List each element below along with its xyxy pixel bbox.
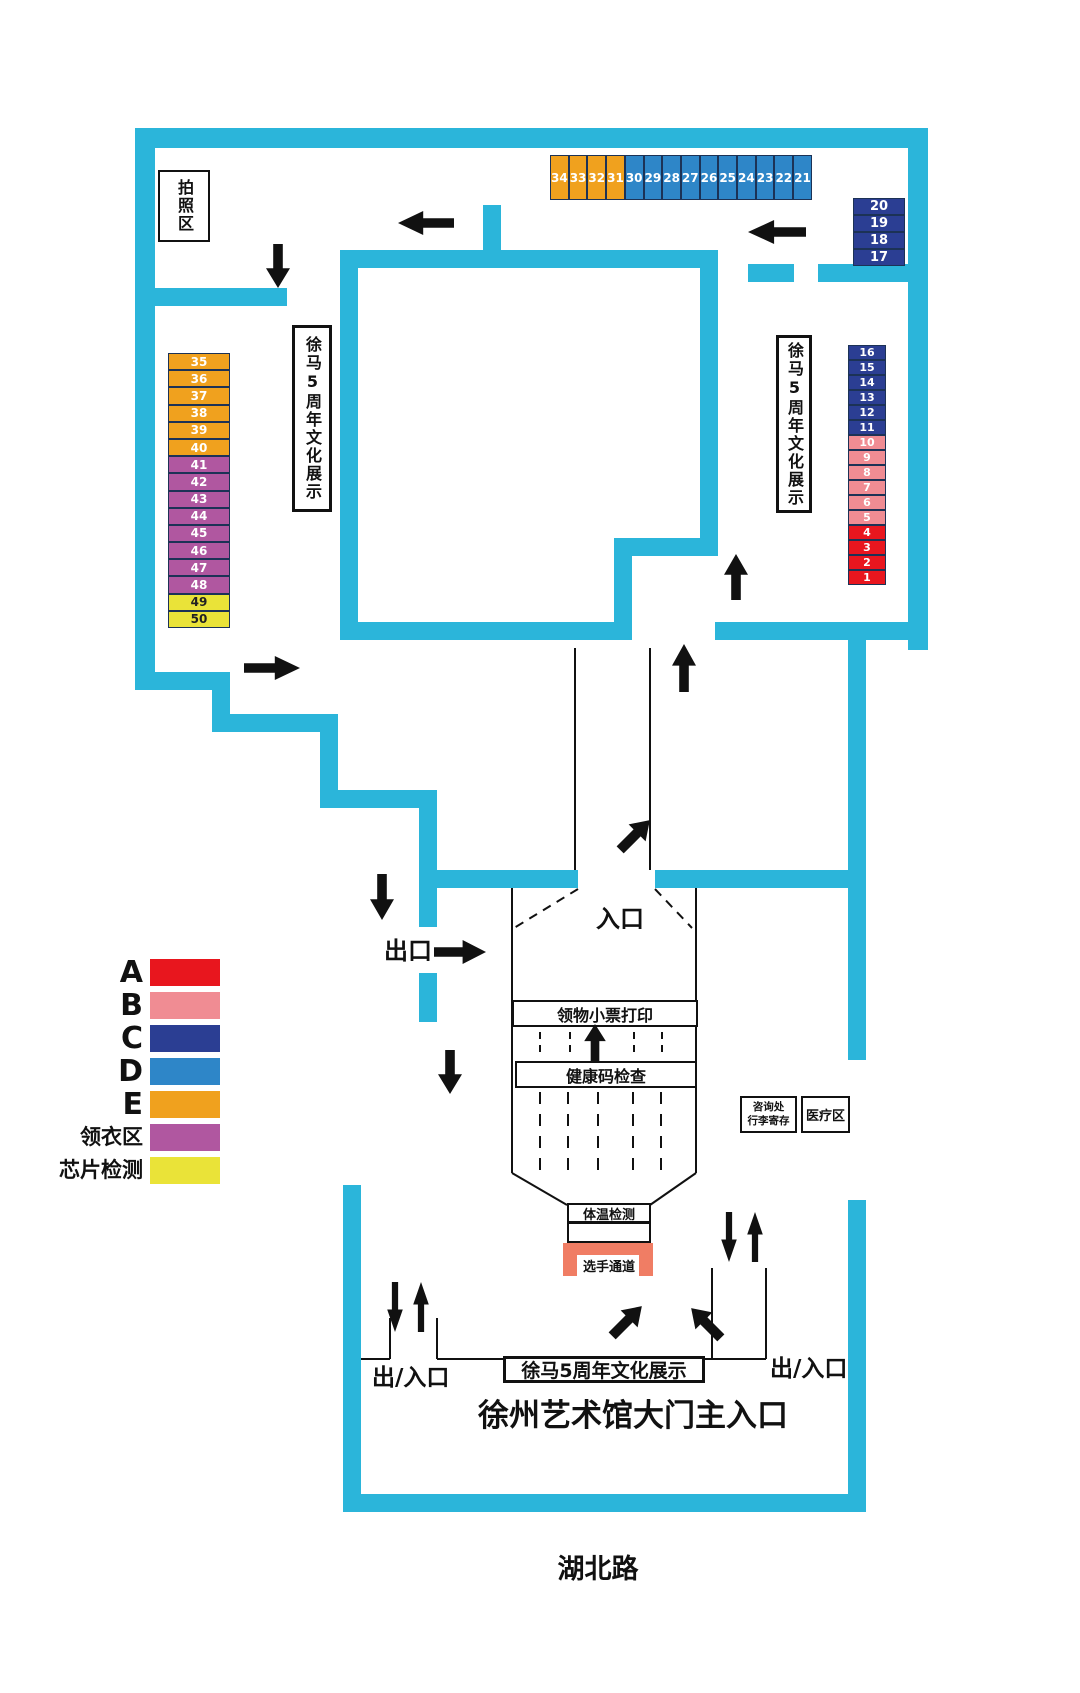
temp-check-empty-box [567, 1222, 651, 1243]
booth-21: 21 [793, 155, 812, 200]
wall-innerroom-right [700, 250, 718, 556]
arrow-up-right-icon [610, 810, 660, 860]
medical-box: 医疗区 [801, 1096, 850, 1133]
info-desk-box: 咨询处 行李寄存 [740, 1096, 797, 1133]
booth-11: 11 [848, 420, 886, 435]
legend-label: B [45, 991, 150, 1021]
booth-18: 18 [853, 232, 905, 249]
main-entrance-title: 徐州艺术馆大门主入口 [443, 1390, 823, 1435]
booth-34: 34 [550, 155, 569, 200]
booth-39: 39 [168, 422, 230, 439]
booth-20: 20 [853, 198, 905, 215]
booth-6: 6 [848, 495, 886, 510]
booth-9: 9 [848, 450, 886, 465]
medical-label: 医疗区 [806, 1105, 845, 1124]
booth-41: 41 [168, 456, 230, 473]
legend-swatch [150, 1091, 220, 1118]
booth-38: 38 [168, 405, 230, 422]
wall-corridor-v3 [419, 790, 437, 927]
legend-swatch [150, 1058, 220, 1085]
legend-label: A [45, 958, 150, 988]
booth-12: 12 [848, 405, 886, 420]
wall-top [135, 128, 928, 148]
legend-row: 领衣区 [45, 1121, 220, 1154]
wall-lower-left [343, 1185, 361, 1494]
booth-col-17-20: 20191817 [853, 198, 905, 262]
booth-45: 45 [168, 525, 230, 542]
booth-33: 33 [569, 155, 588, 200]
legend-row: E [45, 1088, 220, 1121]
booth-17: 17 [853, 249, 905, 266]
wall-right-outer [908, 128, 928, 650]
legend-swatch [150, 1124, 220, 1151]
legend-swatch [150, 992, 220, 1019]
wall-innerroom-step-v [614, 545, 632, 640]
wall-photo-sep [135, 288, 287, 306]
arrow-down-icon [362, 874, 402, 920]
arrow-up-icon [408, 1282, 434, 1332]
arrow-right-icon [434, 932, 486, 972]
booth-7: 7 [848, 480, 886, 495]
arrow-up-icon [577, 1024, 613, 1062]
booth-14: 14 [848, 375, 886, 390]
booth-31: 31 [606, 155, 625, 200]
booth-27: 27 [681, 155, 700, 200]
exhibit-bottom-label: 徐马5周年文化展示 [521, 1356, 686, 1383]
arrow-down-icon [430, 1050, 470, 1094]
wall-entry-left [419, 870, 578, 888]
legend-row: A [45, 956, 220, 989]
gate-right-label: 出/入口 [770, 1349, 862, 1383]
ticket-print-label: 领物小票打印 [557, 1002, 653, 1026]
booth-13: 13 [848, 390, 886, 405]
arrow-up-icon [664, 644, 704, 692]
arrow-left-icon [398, 203, 454, 243]
legend-label: D [45, 1057, 150, 1087]
booth-49: 49 [168, 594, 230, 611]
booth-30: 30 [625, 155, 644, 200]
info-desk-line2: 行李寄存 [748, 1115, 790, 1129]
booth-40: 40 [168, 439, 230, 456]
booth-col-1-16: 16151413121110987654321 [848, 345, 886, 575]
booth-28: 28 [662, 155, 681, 200]
road-label: 湖北路 [498, 1547, 698, 1586]
wall-entry-right [655, 870, 848, 888]
arrow-up-left-icon [681, 1298, 731, 1348]
booth-23: 23 [756, 155, 775, 200]
legend-row: 芯片检测 [45, 1154, 220, 1187]
legend-swatch [150, 1157, 220, 1184]
photo-area-box: 拍照区 [158, 170, 210, 242]
wall-corridor-v4 [419, 973, 437, 1022]
legend-swatch [150, 1025, 220, 1052]
legend-label: E [45, 1090, 150, 1120]
booth-1: 1 [848, 570, 886, 585]
booth-25: 25 [718, 155, 737, 200]
arrow-down-icon [258, 244, 298, 288]
arrow-up-icon [716, 554, 756, 600]
wall-bottom [343, 1494, 866, 1512]
booth-29: 29 [644, 155, 663, 200]
legend-label: C [45, 1024, 150, 1054]
booth-50: 50 [168, 611, 230, 628]
venue-floor-plan: 3433323130292827262524232221 20191817 16… [0, 0, 1080, 1693]
exhibit-right-box: 徐马5周年文化展示 [776, 335, 812, 513]
legend-row: D [45, 1055, 220, 1088]
legend-row: B [45, 989, 220, 1022]
gate-left-label: 出/入口 [372, 1358, 464, 1392]
wall-upper-right-stub [748, 264, 794, 282]
athlete-channel-label: 选手通道 [567, 1256, 651, 1275]
photo-area-label: 拍照区 [172, 179, 196, 233]
booth-2: 2 [848, 555, 886, 570]
exhibit-right-label: 徐马5周年文化展示 [782, 342, 806, 507]
booth-col-35-50: 35363738394041424344454647484950 [168, 353, 230, 628]
booth-10: 10 [848, 435, 886, 450]
booth-42: 42 [168, 473, 230, 490]
booth-22: 22 [774, 155, 793, 200]
booth-row-21-34: 3433323130292827262524232221 [550, 155, 810, 200]
arrow-up-right-icon [602, 1296, 652, 1346]
booth-16: 16 [848, 345, 886, 360]
exhibit-left-label: 徐马5周年文化展示 [300, 336, 324, 501]
wall-innerroom-bottom [340, 622, 632, 640]
legend-label: 领衣区 [45, 1127, 150, 1148]
booth-8: 8 [848, 465, 886, 480]
booth-5: 5 [848, 510, 886, 525]
temp-check-label: 体温检测 [583, 1204, 635, 1223]
wall-innerroom-stub [483, 205, 501, 268]
legend-label: 芯片检测 [45, 1160, 150, 1181]
arrow-up-icon [742, 1212, 768, 1262]
booth-37: 37 [168, 387, 230, 404]
wall-upper-right-seg [818, 264, 928, 282]
wall-lower-right-a [848, 640, 866, 1060]
ticket-print-box: 领物小票打印 [512, 1000, 698, 1027]
booth-4: 4 [848, 525, 886, 540]
temp-check-box: 体温检测 [567, 1203, 651, 1223]
health-check-label: 健康码检查 [566, 1063, 646, 1087]
booth-43: 43 [168, 491, 230, 508]
booth-46: 46 [168, 542, 230, 559]
exhibit-left-box: 徐马5周年文化展示 [292, 325, 332, 512]
info-desk-line1: 咨询处 [748, 1101, 790, 1115]
entrance-label: 入口 [578, 899, 662, 934]
legend-row: C [45, 1022, 220, 1055]
legend-swatch [150, 959, 220, 986]
booth-15: 15 [848, 360, 886, 375]
arrow-left-icon [748, 212, 806, 252]
booth-24: 24 [737, 155, 756, 200]
arrow-down-icon [716, 1212, 742, 1262]
exhibit-bottom-box: 徐马5周年文化展示 [503, 1356, 705, 1383]
booth-26: 26 [700, 155, 719, 200]
wall-hall-bottom-right [715, 622, 928, 640]
wall-innerroom-top [340, 250, 718, 268]
wall-innerroom-left [340, 250, 358, 640]
booth-44: 44 [168, 508, 230, 525]
booth-48: 48 [168, 576, 230, 593]
booth-36: 36 [168, 370, 230, 387]
booth-3: 3 [848, 540, 886, 555]
arrow-right-icon [244, 648, 300, 688]
legend: ABCDE领衣区芯片检测 [45, 956, 220, 1187]
health-check-box: 健康码检查 [515, 1061, 697, 1088]
booth-32: 32 [587, 155, 606, 200]
booth-19: 19 [853, 215, 905, 232]
booth-35: 35 [168, 353, 230, 370]
wall-left-outer [135, 128, 155, 690]
arrow-down-icon [382, 1282, 408, 1332]
booth-47: 47 [168, 559, 230, 576]
